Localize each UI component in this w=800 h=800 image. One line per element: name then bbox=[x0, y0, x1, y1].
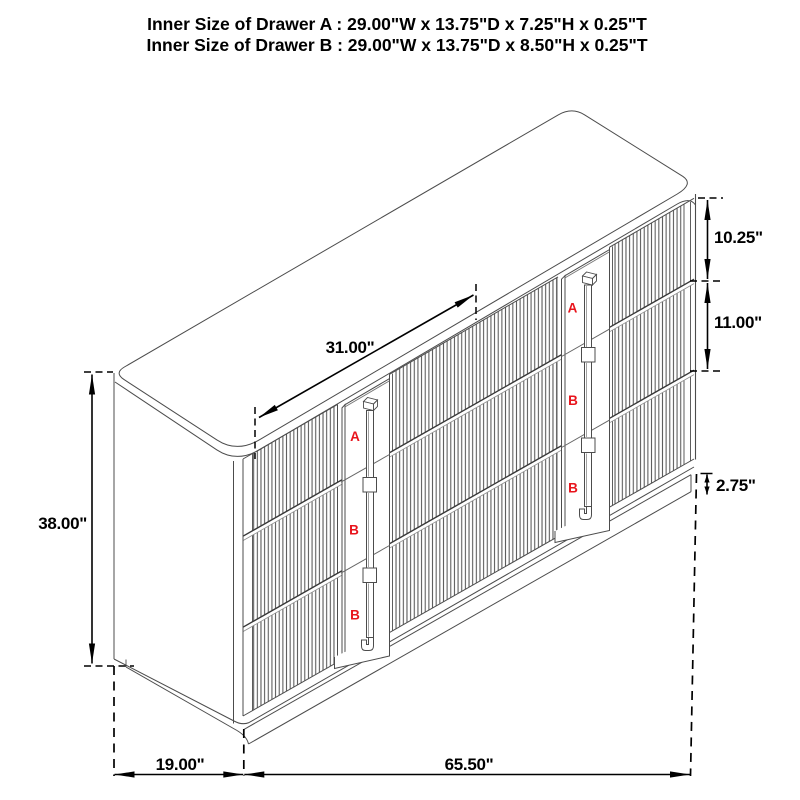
svg-text:19.00": 19.00" bbox=[156, 755, 205, 774]
svg-text:B: B bbox=[568, 393, 578, 408]
svg-text:38.00": 38.00" bbox=[38, 514, 87, 533]
svg-text:Inner Size of Drawer B : 29.00: Inner Size of Drawer B : 29.00"W x 13.75… bbox=[146, 35, 647, 55]
svg-text:2.75": 2.75" bbox=[716, 476, 756, 495]
svg-text:B: B bbox=[349, 523, 359, 538]
svg-text:A: A bbox=[568, 301, 578, 316]
svg-text:Inner Size of Drawer A : 29.00: Inner Size of Drawer A : 29.00"W x 13.75… bbox=[147, 14, 647, 34]
svg-text:B: B bbox=[568, 481, 578, 496]
svg-text:11.00": 11.00" bbox=[714, 313, 762, 332]
svg-text:B: B bbox=[350, 608, 360, 623]
svg-text:65.50": 65.50" bbox=[445, 755, 494, 774]
svg-text:31.00": 31.00" bbox=[326, 338, 375, 357]
svg-text:A: A bbox=[350, 429, 360, 444]
svg-text:10.25": 10.25" bbox=[714, 228, 763, 247]
